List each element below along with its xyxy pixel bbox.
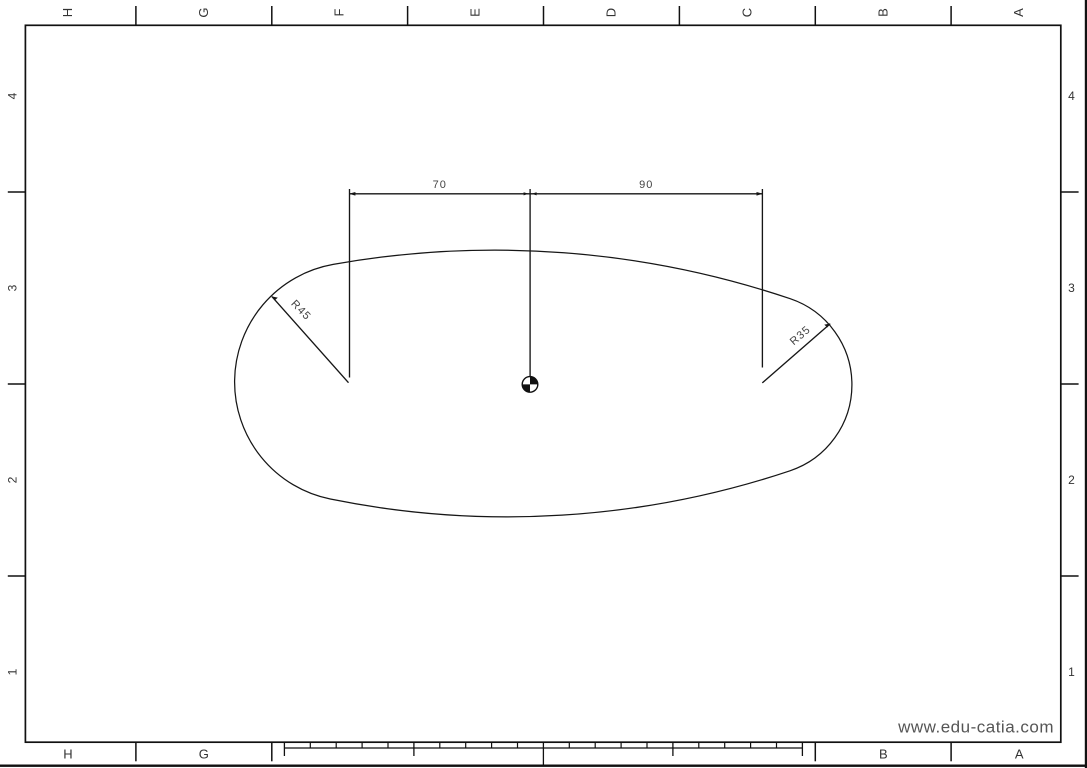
svg-text:3: 3 (6, 284, 20, 291)
svg-text:G: G (199, 747, 209, 762)
svg-text:3: 3 (1068, 281, 1075, 295)
svg-text:H: H (63, 747, 72, 762)
svg-text:A: A (1015, 747, 1024, 762)
svg-text:1: 1 (1068, 665, 1075, 679)
svg-text:F: F (332, 8, 347, 16)
svg-text:2: 2 (6, 476, 20, 483)
svg-text:G: G (196, 7, 211, 17)
svg-text:C: C (739, 8, 754, 17)
svg-text:1: 1 (6, 668, 20, 675)
svg-text:E: E (468, 8, 483, 17)
svg-text:D: D (604, 8, 619, 17)
svg-text:www.edu-catia.com: www.edu-catia.com (897, 718, 1054, 737)
svg-text:H: H (60, 8, 75, 17)
svg-text:A: A (1011, 8, 1026, 17)
svg-text:70: 70 (433, 179, 447, 191)
svg-text:90: 90 (639, 179, 653, 191)
svg-text:2: 2 (1068, 473, 1075, 487)
svg-text:4: 4 (1068, 89, 1075, 103)
svg-text:B: B (879, 747, 888, 762)
svg-text:B: B (875, 8, 890, 17)
svg-text:4: 4 (6, 92, 20, 99)
